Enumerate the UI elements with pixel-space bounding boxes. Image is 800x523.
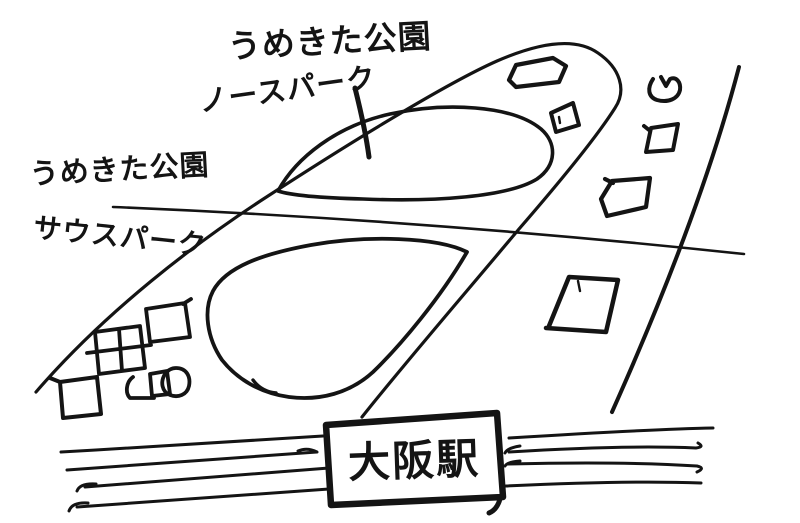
rail-right-2 [505,443,701,453]
building-right-3 [601,178,650,216]
station-box-pen-hook [489,499,500,513]
rail-right-3 [505,461,702,472]
rail-left-1 [61,436,323,452]
building-small-square-tick [559,117,560,123]
north-park-label-line1: うめきた公園 [227,19,432,63]
rail-right-1 [509,428,713,438]
railway-lines-left [61,436,329,511]
buildings-bottom-left [50,299,191,418]
building-small-c [162,368,189,396]
building-right-large [546,277,618,332]
building-right-2 [644,124,678,152]
building-small-square [551,103,579,132]
railway-lines-right [505,428,713,486]
rail-right-4 [506,482,701,486]
south-park-lawn-shape [207,239,467,398]
building-right-large-tick [578,281,580,291]
osaka-station-label: 大阪駅 [330,424,498,498]
building-divided-rect [87,326,151,374]
sketch-map-canvas: うめきた公園 ノースパーク うめきた公園 サウスパーク 大阪駅 [0,0,800,523]
rail-left-3 [77,468,329,491]
building-right-1 [649,77,680,101]
building-tilted-square [146,299,191,342]
building-pentagon [509,58,566,87]
building-lone-square [50,377,101,418]
buildings-right-column [546,77,680,332]
buildings-inside-loop [509,58,579,132]
rail-left-2 [67,449,317,470]
rail-left-4 [69,489,329,511]
road-line-right-diagonal [612,67,739,412]
north-park-lawn-shape [278,107,553,200]
